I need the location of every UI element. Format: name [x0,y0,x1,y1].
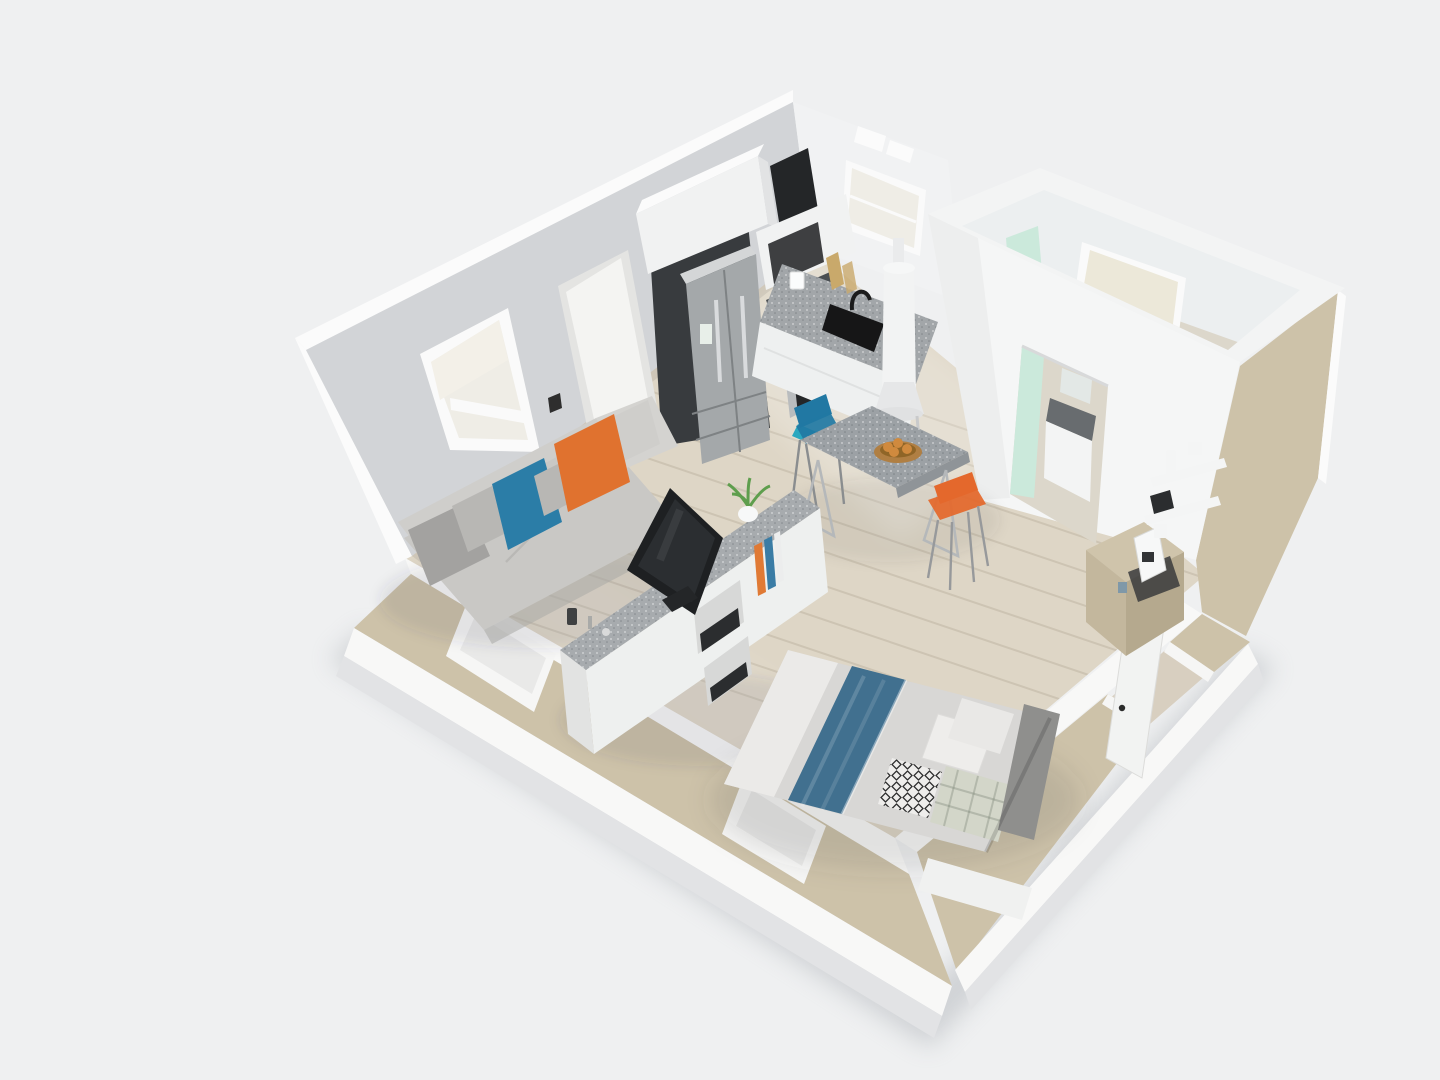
candle [588,616,592,629]
plant-pot [738,506,758,522]
shelf-box [1188,442,1202,455]
floorplan-render-stage [0,0,1440,1080]
vase-dark [567,608,577,625]
shelf-box-2 [1154,524,1167,538]
door-handle-2 [1119,705,1125,711]
mug [790,272,804,289]
apartment-isometric-render [0,0,1440,1080]
tealight [602,628,610,636]
energy-label [700,324,712,344]
blue-cup [1118,582,1127,593]
column-body [882,268,916,396]
shelf-bottle [1166,450,1176,474]
